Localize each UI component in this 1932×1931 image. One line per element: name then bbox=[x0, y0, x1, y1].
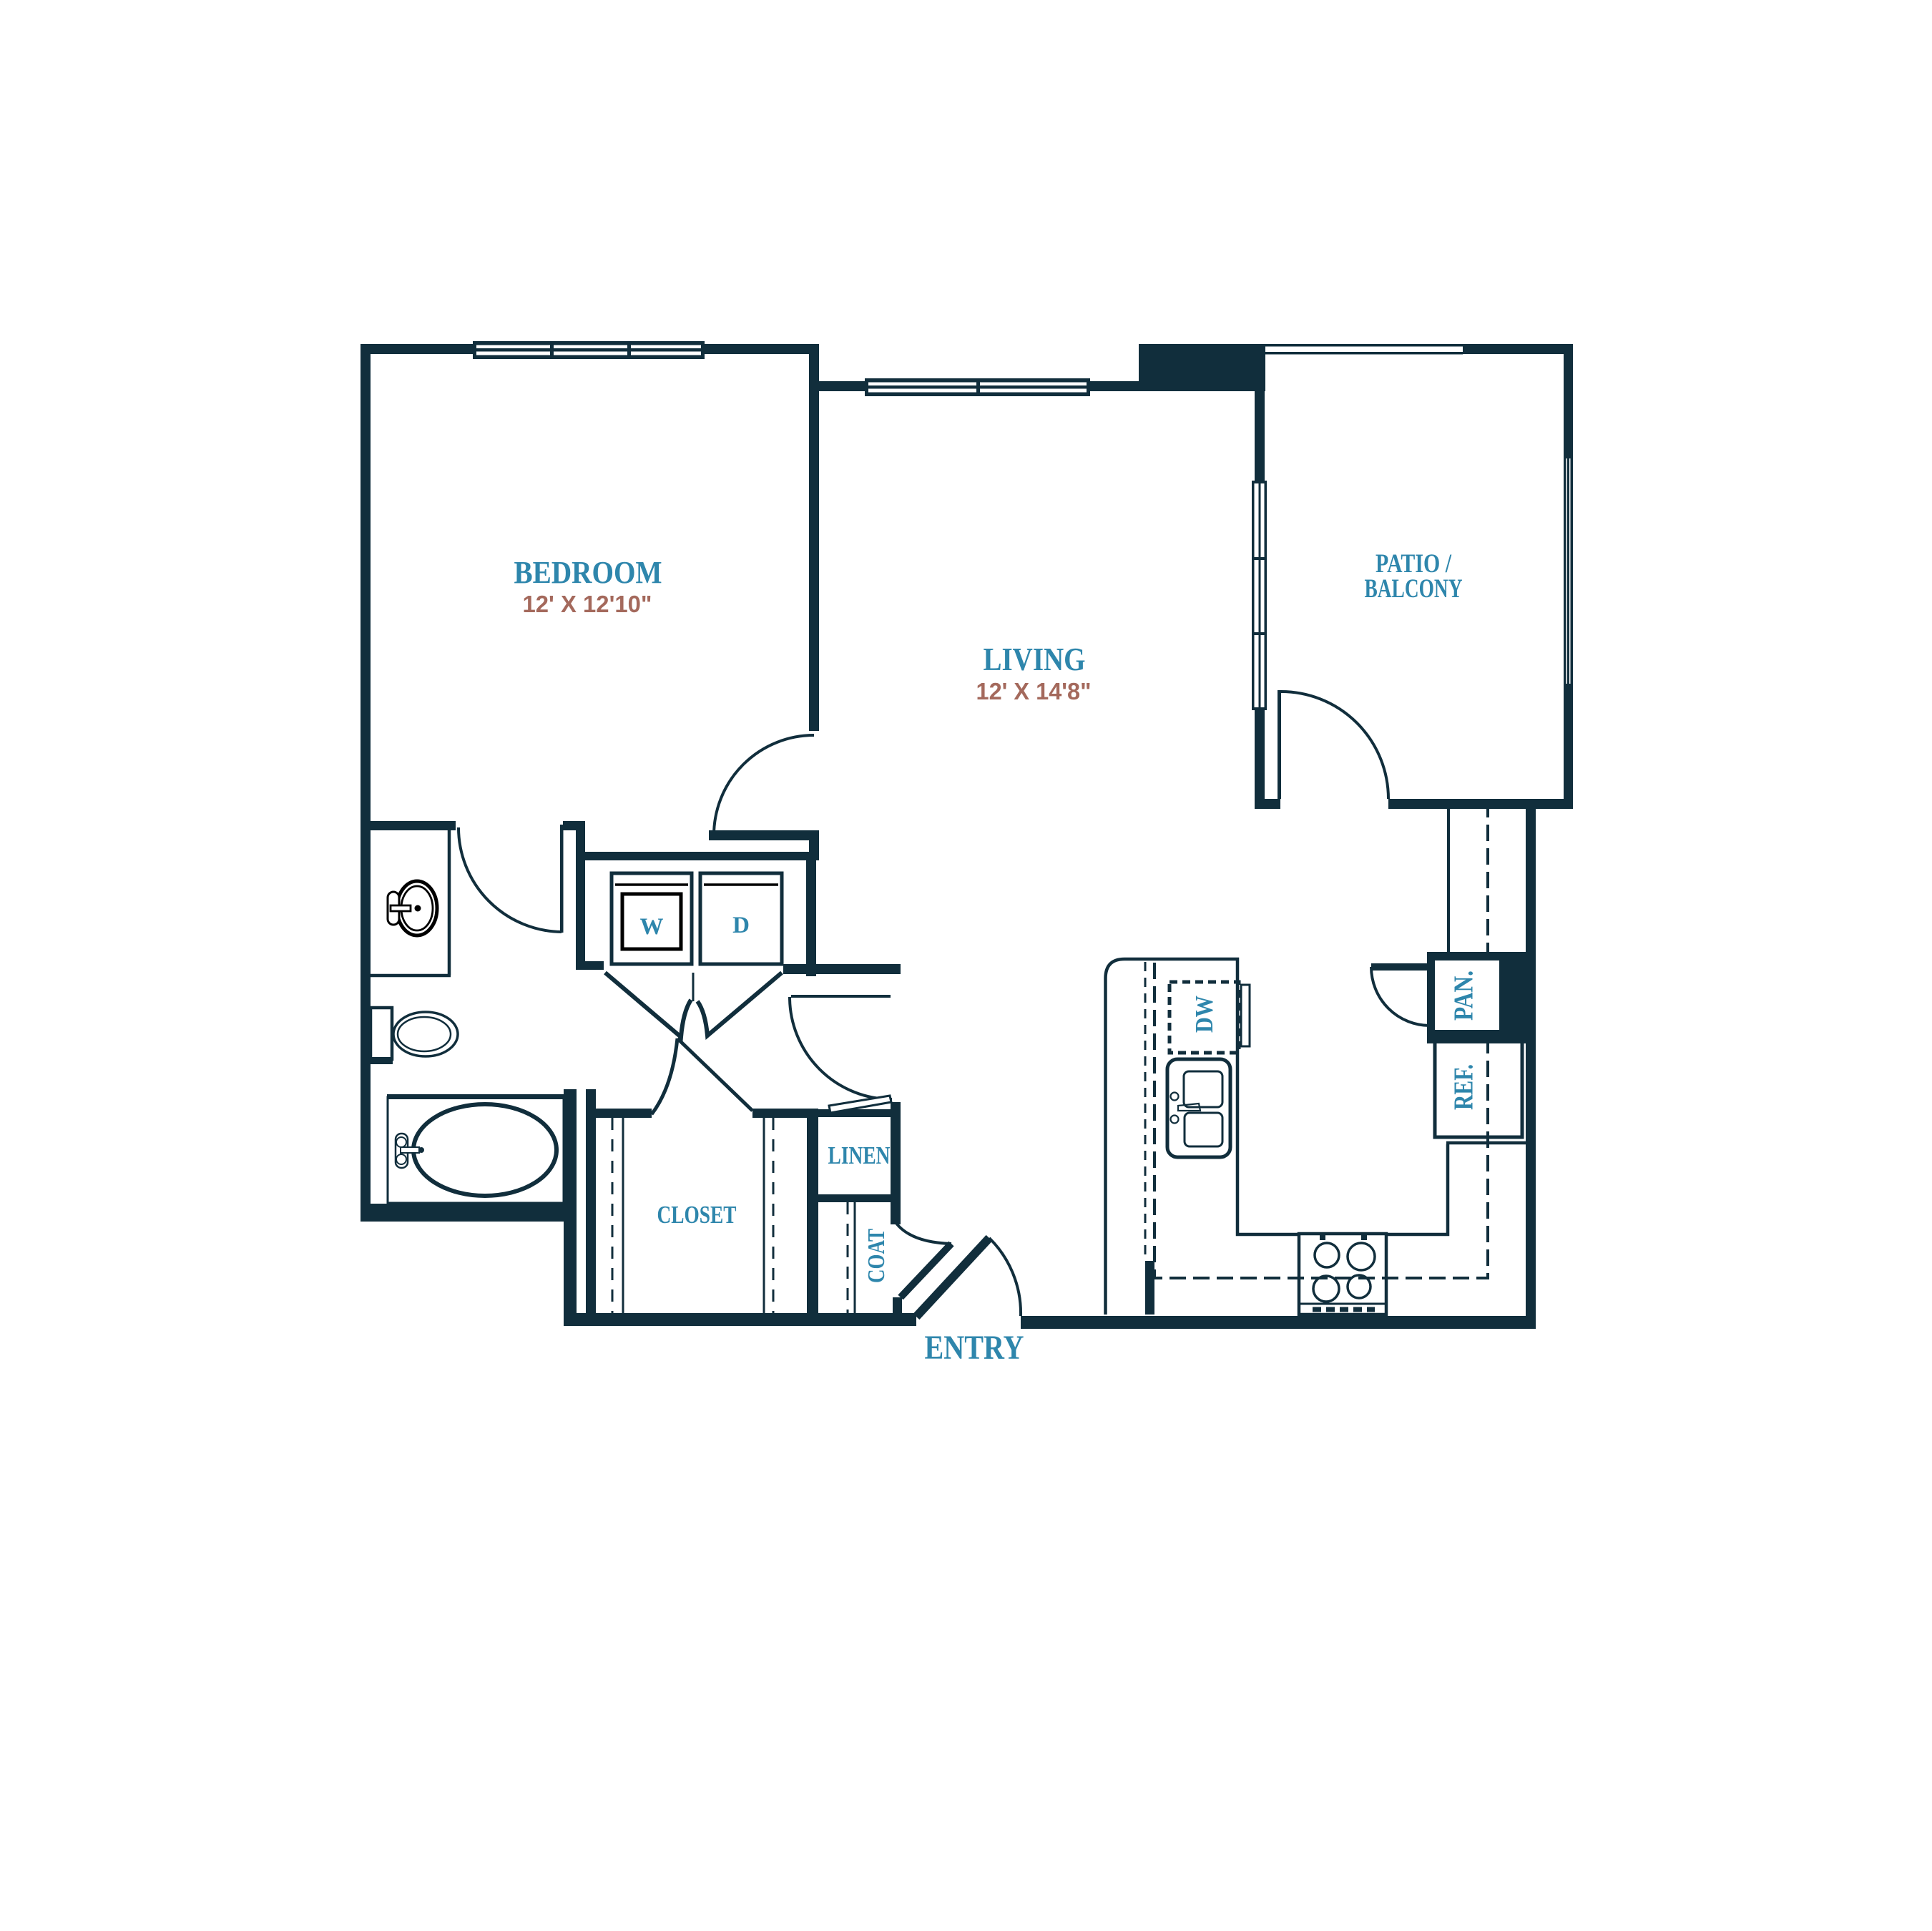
svg-text:W: W bbox=[640, 914, 664, 940]
svg-text:COAT: COAT bbox=[863, 1229, 890, 1283]
svg-text:REF.: REF. bbox=[1449, 1064, 1479, 1110]
svg-text:LIVING: LIVING bbox=[984, 641, 1086, 677]
svg-text:CLOSET: CLOSET bbox=[657, 1201, 737, 1229]
svg-text:12' X 12'10": 12' X 12'10" bbox=[523, 591, 652, 617]
svg-text:LINEN: LINEN bbox=[828, 1141, 891, 1169]
svg-text:BEDROOM: BEDROOM bbox=[514, 555, 662, 590]
svg-text:BALCONY: BALCONY bbox=[1365, 574, 1463, 604]
svg-text:PAN.: PAN. bbox=[1449, 971, 1479, 1021]
svg-text:ENTRY: ENTRY bbox=[925, 1329, 1024, 1367]
svg-text:12' X 14'8": 12' X 14'8" bbox=[976, 678, 1092, 704]
svg-text:D: D bbox=[732, 913, 750, 938]
svg-text:DW: DW bbox=[1190, 996, 1218, 1033]
